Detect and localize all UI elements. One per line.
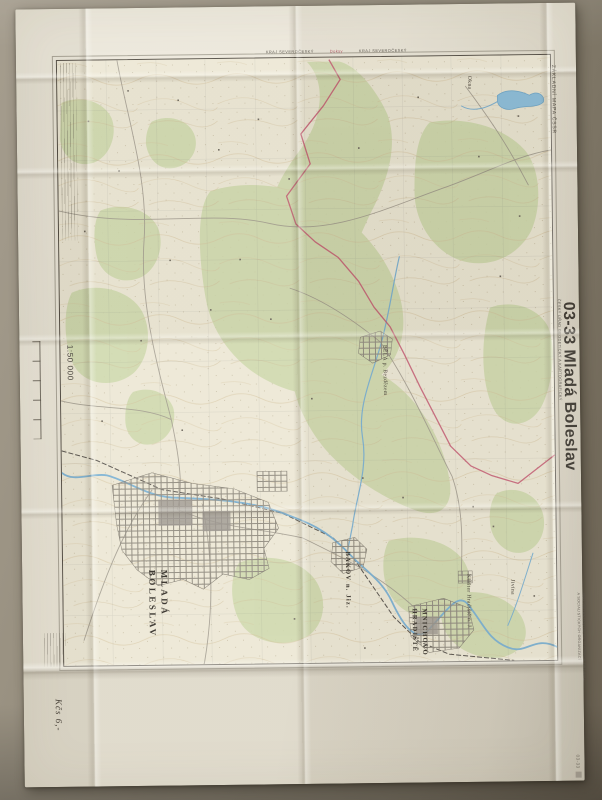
- photo-of-folded-map: MLADÁ BOLESLAV BĚLÁ p. Bezdězem BAKOV n.…: [0, 0, 602, 800]
- map-artwork: [57, 55, 557, 666]
- town-label-okna: Okna: [466, 76, 472, 90]
- kraj-label-left: KRAJ SEVEROČESKÝ: [266, 49, 314, 55]
- restriction-line-1: PRO VNITŘNÍ POTŘEBU STÁTNÍCH ORGÁNŮ: [580, 593, 586, 681]
- town-label-klaster: Klášter Hradiště n. J.: [465, 574, 472, 629]
- adjoining-sheet-label: Doksy: [330, 48, 343, 53]
- town-label-bela: BĚLÁ p. Bezdězem: [381, 345, 388, 396]
- town-label-jivina: Jivina: [509, 579, 515, 595]
- city-label-boleslav: BOLESLAV: [147, 570, 158, 638]
- town-label-mnichovo: MNICHOVO: [421, 608, 429, 655]
- urban-kosmonosy: [257, 471, 287, 491]
- contour-layer: [57, 55, 557, 666]
- map-sheet-paper: MLADÁ BOLESLAV BĚLÁ p. Bezdězem BAKOV n.…: [15, 3, 584, 788]
- restriction-note: PRO VNITŘNÍ POTŘEBU STÁTNÍCH ORGÁNŮ A SO…: [575, 593, 586, 681]
- town-label-bakov: BAKOV n. Jiz.: [344, 551, 352, 608]
- corner-stamp-mark: [576, 772, 582, 778]
- corner-stamp: 03-33: [575, 755, 580, 769]
- handwritten-price: Kčs 6,-: [54, 699, 64, 732]
- kraj-label-right: KRAJ SEVEROČESKÝ: [359, 48, 407, 54]
- series-label: ZÁKLADNÍ MAPA ČSSR: [550, 65, 557, 134]
- top-margin-labels: KRAJ SEVEROČESKÝ Doksy KRAJ SEVEROČESKÝ: [266, 48, 407, 55]
- scale-text: 1:50 000: [65, 345, 74, 381]
- scale-bar: [32, 341, 41, 439]
- town-label-hradiste: HRADIŠTĚ: [411, 609, 419, 653]
- sheet-title: 03-33 Mladá Boleslav: [559, 302, 579, 471]
- city-label-mlada: MLADÁ: [159, 570, 170, 617]
- map-neatline-frame: MLADÁ BOLESLAV BĚLÁ p. Bezdězem BAKOV n.…: [56, 54, 558, 667]
